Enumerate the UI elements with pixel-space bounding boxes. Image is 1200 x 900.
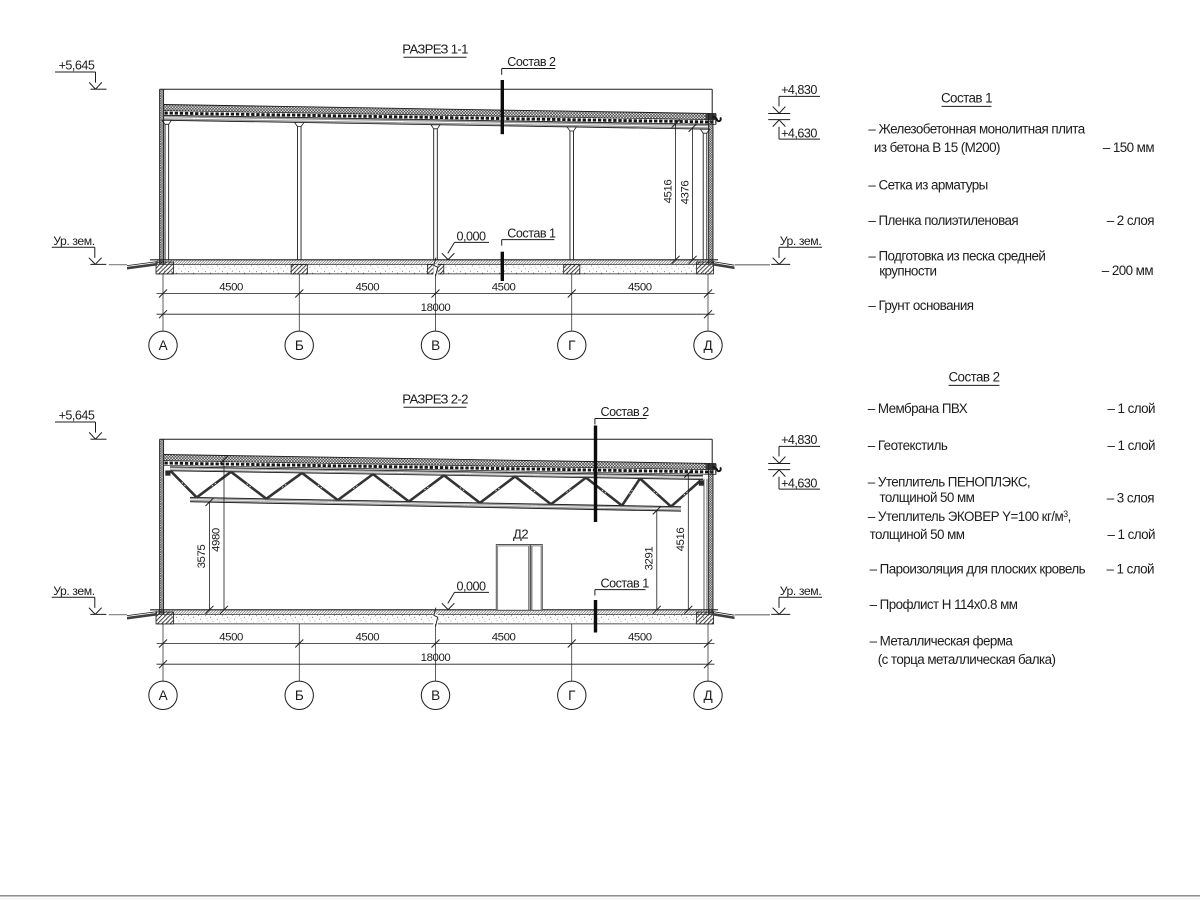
- svg-text:– 1 слой: – 1 слой: [1107, 438, 1155, 453]
- svg-text:В: В: [431, 688, 440, 703]
- svg-text:– Утеплитель ЭКОВЕР Y=100 кг/м: – Утеплитель ЭКОВЕР Y=100 кг/м3,: [868, 509, 1071, 524]
- svg-text:Состав 1: Состав 1: [507, 226, 556, 240]
- svg-text:(с торца металлическая балка): (с торца металлическая балка): [878, 652, 1056, 667]
- svg-text:– Подготовка из песка средней: – Подготовка из песка средней: [868, 248, 1045, 263]
- svg-text:крупности: крупности: [879, 263, 936, 278]
- svg-text:Состав 2: Состав 2: [507, 55, 556, 69]
- svg-text:РАЗРЕЗ 2-2: РАЗРЕЗ 2-2: [402, 392, 468, 407]
- svg-text:– Мембрана ПВХ: – Мембрана ПВХ: [868, 401, 968, 416]
- svg-text:3575: 3575: [196, 545, 208, 569]
- svg-text:4500: 4500: [492, 632, 516, 644]
- svg-text:+5,645: +5,645: [59, 409, 95, 423]
- svg-text:– Геотекстиль: – Геотекстиль: [868, 438, 948, 453]
- svg-text:+4,830: +4,830: [781, 433, 817, 447]
- svg-text:Б: Б: [295, 688, 304, 703]
- svg-text:РАЗРЕЗ 1-1: РАЗРЕЗ 1-1: [402, 42, 468, 57]
- svg-text:Состав 2: Состав 2: [948, 370, 999, 385]
- svg-text:Состав 1: Состав 1: [601, 576, 650, 590]
- svg-text:4516: 4516: [663, 180, 675, 204]
- svg-text:0,000: 0,000: [456, 579, 486, 593]
- svg-text:4500: 4500: [219, 632, 243, 644]
- svg-text:4500: 4500: [628, 632, 652, 644]
- svg-text:– Грунт основания: – Грунт основания: [868, 298, 973, 313]
- svg-text:3291: 3291: [643, 547, 655, 571]
- svg-text:Б: Б: [295, 338, 304, 353]
- svg-text:– 150 мм: – 150 мм: [1103, 140, 1155, 155]
- svg-text:4500: 4500: [628, 282, 652, 294]
- svg-text:0,000: 0,000: [456, 229, 486, 243]
- svg-text:4980: 4980: [211, 528, 223, 552]
- svg-text:4500: 4500: [356, 632, 380, 644]
- svg-text:Ур. зем.: Ур. зем.: [53, 234, 95, 248]
- svg-text:толщиной 50 мм: толщиной 50 мм: [870, 527, 965, 542]
- svg-text:А: А: [159, 338, 169, 353]
- svg-text:из бетона В 15 (М200): из бетона В 15 (М200): [874, 140, 1000, 155]
- svg-text:– Пленка полиэтиленовая: – Пленка полиэтиленовая: [868, 213, 1018, 228]
- svg-text:Д: Д: [703, 688, 712, 703]
- svg-text:4500: 4500: [219, 282, 243, 294]
- svg-text:Состав 1: Состав 1: [941, 91, 992, 106]
- svg-text:Д: Д: [703, 338, 712, 353]
- svg-text:+4,830: +4,830: [781, 83, 817, 97]
- svg-text:– Железобетонная монолитная п: – Железобетонная монолитная плита: [868, 122, 1085, 137]
- svg-text:18000: 18000: [421, 652, 451, 664]
- svg-text:Ур. зем.: Ур. зем.: [780, 584, 822, 598]
- svg-text:Ур. зем.: Ур. зем.: [780, 234, 822, 248]
- svg-text:– Сетка из арматуры: – Сетка из арматуры: [868, 178, 987, 193]
- svg-text:В: В: [431, 338, 440, 353]
- svg-text:4376: 4376: [680, 181, 692, 205]
- svg-text:– Утеплитель ПЕНОПЛЭКС,: – Утеплитель ПЕНОПЛЭКС,: [868, 474, 1030, 489]
- svg-text:Состав 2: Состав 2: [601, 405, 650, 419]
- svg-text:+4,630: +4,630: [781, 126, 817, 140]
- svg-text:– Металлическая ферма: – Металлическая ферма: [870, 634, 1014, 649]
- svg-text:4516: 4516: [675, 528, 687, 552]
- svg-text:Г: Г: [568, 688, 576, 703]
- svg-text:+4,630: +4,630: [781, 476, 817, 490]
- svg-text:– Пароизоляция для плоских кро: – Пароизоляция для плоских кровель: [870, 562, 1086, 577]
- svg-text:4500: 4500: [356, 282, 380, 294]
- svg-text:А: А: [159, 688, 169, 703]
- svg-text:– 1 слой: – 1 слой: [1106, 561, 1154, 576]
- svg-text:– 2 слоя: – 2 слоя: [1107, 213, 1155, 228]
- svg-text:толщиной 50 мм: толщиной 50 мм: [880, 490, 975, 505]
- svg-text:– 3 слоя: – 3 слоя: [1107, 490, 1155, 505]
- svg-text:– Профлист Н 114х0.8 мм: – Профлист Н 114х0.8 мм: [870, 597, 1018, 612]
- svg-text:Г: Г: [568, 338, 576, 353]
- svg-text:Д2: Д2: [513, 527, 528, 542]
- svg-text:Ур. зем.: Ур. зем.: [53, 584, 95, 598]
- svg-text:4500: 4500: [492, 282, 516, 294]
- svg-text:– 200 мм: – 200 мм: [1102, 263, 1154, 278]
- svg-text:18000: 18000: [421, 302, 451, 314]
- svg-text:– 1 слой: – 1 слой: [1107, 401, 1155, 416]
- svg-text:– 1 слой: – 1 слой: [1107, 527, 1155, 542]
- svg-text:+5,645: +5,645: [59, 59, 95, 73]
